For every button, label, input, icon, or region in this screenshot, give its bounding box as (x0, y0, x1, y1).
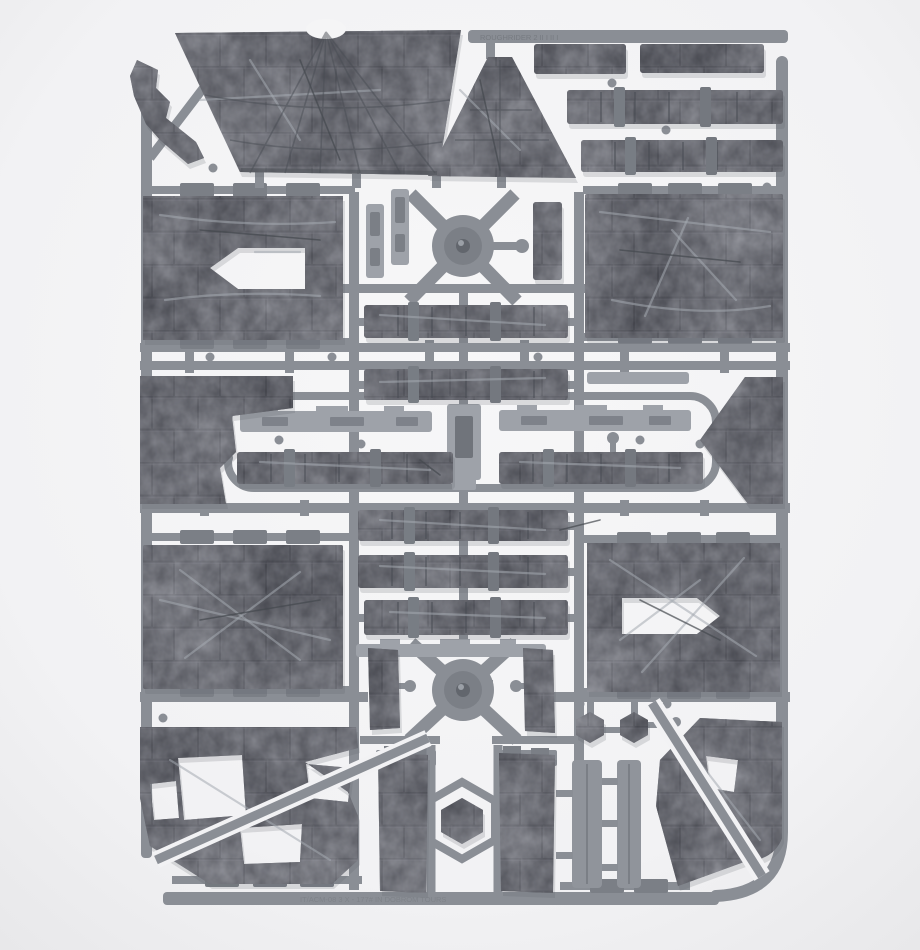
svg-text:IT/ACM-08 3 X - 177# IN DOBROM: IT/ACM-08 3 X - 177# IN DOBROM TOURS (300, 895, 446, 904)
svg-text:ROUGHRIDER 2 II I II I: ROUGHRIDER 2 II I II I (480, 33, 558, 42)
